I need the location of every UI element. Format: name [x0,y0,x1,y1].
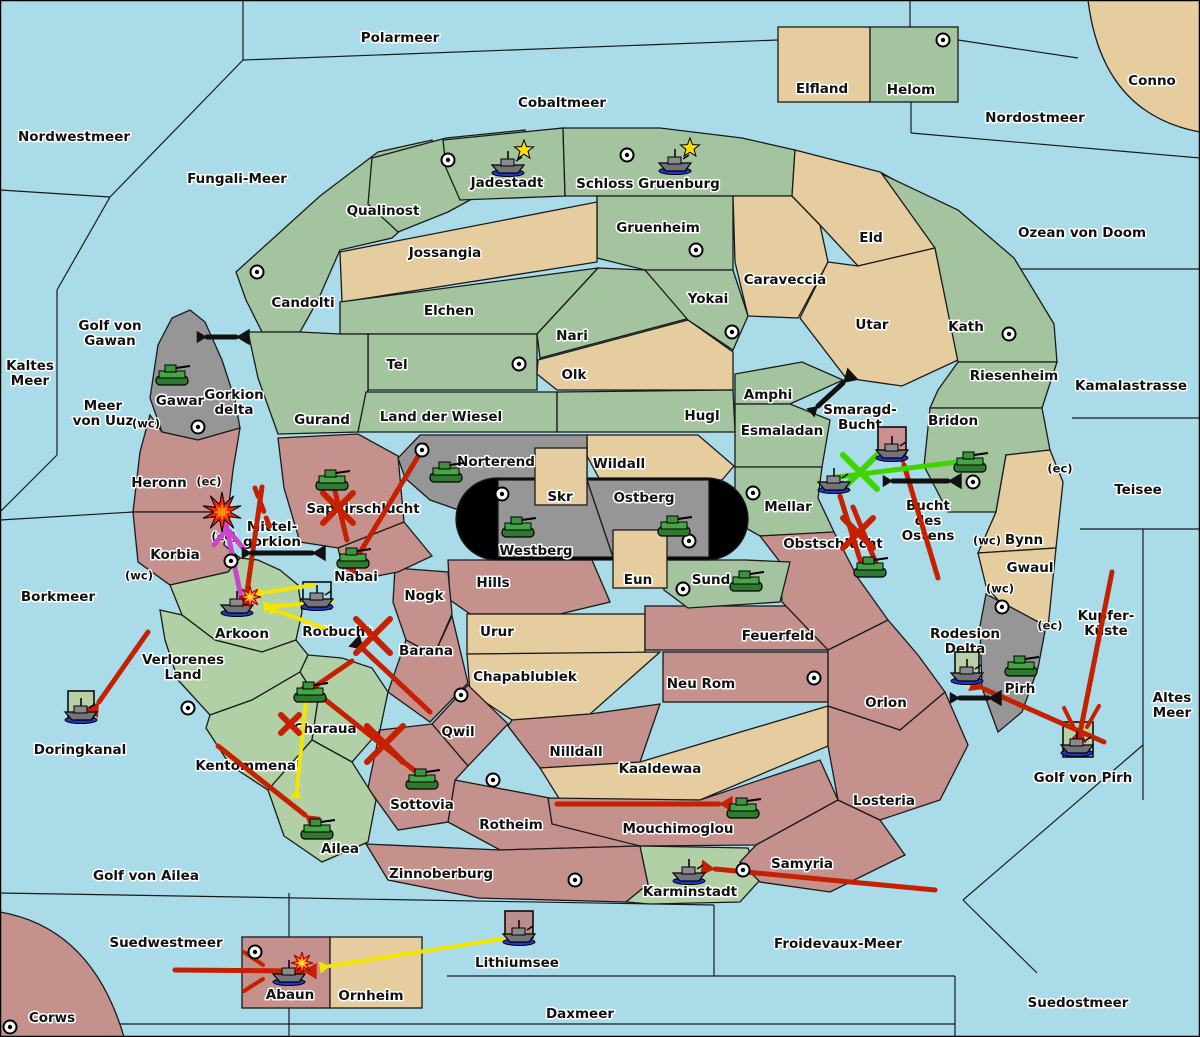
region-label-samyria: Samyria [771,856,833,872]
supply-center-dot [182,702,195,715]
supply-center-dot [569,874,582,887]
coast-tag-label: (ec) [1047,462,1072,476]
region-label-gwaul: Gwaul [1007,560,1054,576]
sea-label-altes: AltesMeer [1153,690,1192,721]
sea-label-polarmeer: Polarmeer [361,30,440,46]
supply-center-dot [677,583,690,596]
sea-label-golf-von-pirh: Golf von Pirh [1034,770,1133,786]
explosion-icon [291,952,313,974]
region-label-rotheim: Rotheim [479,817,543,833]
sea-label-borkmeer: Borkmeer [21,589,96,605]
region-label-nilldall: Nilldall [549,744,602,760]
region-label-zinnoberburg: Zinnoberburg [389,866,493,882]
coast-tag-label: (wc) [973,534,1001,548]
supply-center-dot [747,487,760,500]
region-label-sund: Sund [692,572,731,588]
region-label-ornheim: Ornheim [338,988,403,1004]
supply-center-dot [737,864,750,877]
region-label-candolti: Candolti [271,295,334,311]
sea-label-nordwestmeer: Nordwestmeer [18,129,130,145]
explosion-icon [239,586,261,608]
region-label-bynn: Bynn [1005,532,1043,548]
region-label-orlon: Orlon [865,695,907,711]
sea-label-cobaltmeer: Cobaltmeer [518,95,606,111]
region-label-olk: Olk [561,367,587,383]
supply-center-dot [513,358,526,371]
supply-center-dot [416,444,429,457]
region-label-hugl: Hugl [684,408,719,424]
region-label-corws: Corws [29,1010,75,1026]
sea-label-suedostmeer: Suedostmeer [1028,995,1129,1011]
sea-label-suedwestmeer: Suedwestmeer [109,935,223,951]
region-label-hills: Hills [476,575,509,591]
coast-tag-label: (ec) [196,475,221,489]
supply-center-dot [192,421,205,434]
sea-label-froidevaux-meer: Froidevaux-Meer [774,936,902,952]
region-label-ailea: Ailea [321,841,359,857]
supply-center-dot [621,149,634,162]
region-label-eld: Eld [859,230,883,246]
region-label-nabai: Nabai [334,569,378,585]
sea-label-ozean-von-doom: Ozean von Doom [1018,225,1146,241]
region-label-abaun: Abaun [266,987,314,1003]
region-label-arkoon: Arkoon [215,626,269,642]
region-label-esmaladan: Esmaladan [741,423,824,439]
region-label-mellar: Mellar [764,499,812,515]
region-label-losteria: Losteria [853,793,915,809]
sea-label-kaltes: KaltesMeer [6,358,54,389]
region-label-elfland: Elfland [796,81,848,97]
region-label-gruenheim: Gruenheim [616,220,700,236]
game-map: CandoltiQualinostJadestadtSchloss Gruenb… [0,0,1200,1037]
region-label-westberg: Westberg [499,543,572,559]
region-label-amphi: Amphi [744,387,792,403]
supply-center-dot [726,326,739,339]
supply-center-dot [251,266,264,279]
region-label-conno: Conno [1128,73,1176,89]
region-label-feuerfeld: Feuerfeld [742,628,815,644]
sea-label-golf-von-ailea: Golf von Ailea [93,868,199,884]
region-label-tel: Tel [386,357,407,373]
sea-label-doringkanal: Doringkanal [34,742,126,758]
sea-label-kamalastrasse: Kamalastrasse [1075,378,1187,394]
region-hills[interactable] [448,560,610,614]
region-label-gawar: Gawar [156,393,205,409]
region-label-qualinost: Qualinost [347,203,420,219]
supply-center-dot [4,1021,17,1034]
supply-center-dot [996,601,1009,614]
region-label-kath: Kath [948,319,984,335]
region-label-schloss-gruenburg: Schloss Gruenburg [576,176,720,192]
region-label-elchen: Elchen [424,303,474,319]
region-label-norterend: Norterend [457,454,535,470]
region-label-heronn: Heronn [131,475,187,491]
supply-center-dot [1003,328,1016,341]
region-label-skr: Skr [547,489,573,505]
sea-label-daxmeer: Daxmeer [546,1006,614,1022]
region-label-karminstadt: Karminstadt [643,884,738,900]
sea-label-fungali-meer: Fungali-Meer [187,171,287,187]
region-label-riesenheim: Riesenheim [970,368,1058,384]
map-canvas: CandoltiQualinostJadestadtSchloss Gruenb… [0,0,1200,1037]
supply-center-dot [808,672,821,685]
region-label-caraveccia: Caraveccia [744,272,826,288]
sea-label-golf-von: Golf vonGawan [78,318,141,349]
region-label-gurand: Gurand [294,412,350,428]
supply-center-dot [225,555,238,568]
region-label-yokai: Yokai [687,291,729,307]
supply-center-dot [690,244,703,257]
region-label-nari: Nari [556,328,588,344]
sea-label-teisee: Teisee [1114,482,1162,498]
region-label-land-der-wiesel: Land der Wiesel [380,409,502,425]
region-label-helom: Helom [887,82,935,98]
region-label-pirh: Pirh [1005,681,1036,697]
region-label-nogk: Nogk [404,588,444,604]
supply-center-dot [455,689,468,702]
region-label-mouchimoglou: Mouchimoglou [622,821,733,837]
supply-center-dot [967,476,980,489]
coast-tag-label: (ec) [1037,619,1062,633]
region-label-neu-rom: Neu Rom [667,676,736,692]
supply-center-dot [249,946,262,959]
coast-tag-label: (wc) [132,417,160,431]
region-label-wildall: Wildall [593,456,645,472]
region-label-qwil: Qwil [441,724,474,740]
coast-tag-label: (wc) [125,569,153,583]
region-label-kaaldewaa: Kaaldewaa [619,761,702,777]
coast-tag-label: (wc) [986,582,1014,596]
sea-label-nordostmeer: Nordostmeer [985,110,1085,126]
region-label-urur: Urur [480,624,514,640]
region-label-eun: Eun [624,572,652,588]
supply-center-dot [487,774,500,787]
region-label-saphirschlucht: Saphirschlucht [306,501,420,517]
region-label-bridon: Bridon [928,413,978,429]
supply-center-dot [496,488,509,501]
supply-center-dot [442,154,455,167]
region-label-barana: Barana [399,643,453,659]
region-label-ostberg: Ostberg [613,490,674,506]
supply-center-dot [937,34,950,47]
region-label-utar: Utar [855,317,889,333]
region-label-jadestadt: Jadestadt [470,175,544,191]
region-label-sottovia: Sottovia [390,797,454,813]
region-label-jossangia: Jossangia [408,245,482,261]
sea-label-lithiumsee: Lithiumsee [475,955,559,971]
region-label-korbia: Korbia [150,547,200,563]
region-label-chapablublek: Chapablublek [473,669,578,685]
